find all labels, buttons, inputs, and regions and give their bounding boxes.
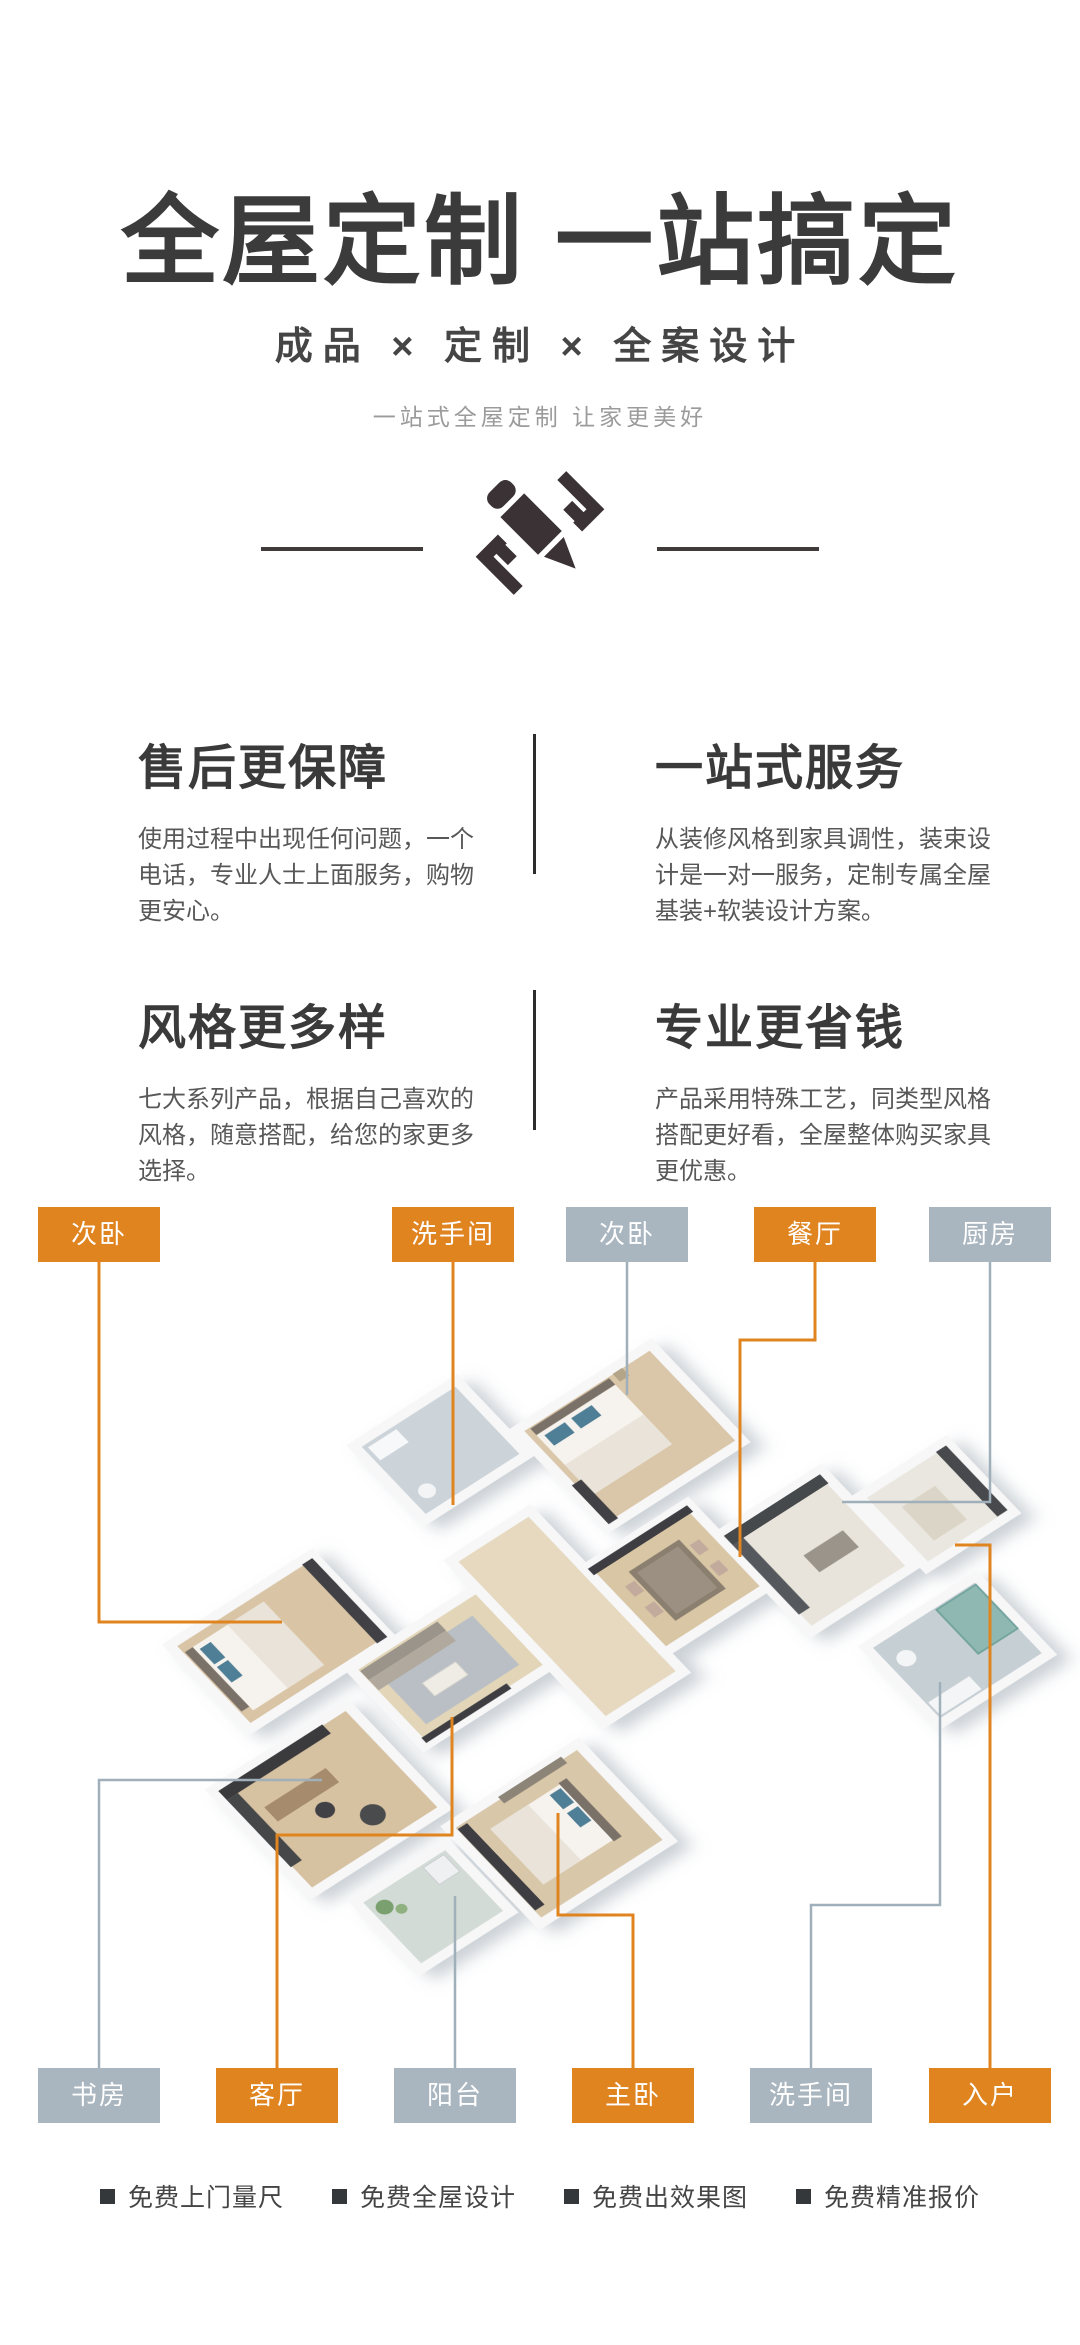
leader-bedroom2-top	[99, 1262, 282, 1622]
feature-divider-top	[533, 734, 536, 874]
feature-title: 专业更省钱	[655, 988, 1000, 1058]
feature-title: 一站式服务	[655, 728, 1000, 798]
service-item: 免费全屋设计	[332, 2178, 516, 2214]
right-divider-line	[657, 547, 819, 551]
room-label-balcony: 阳台	[394, 2068, 516, 2123]
feature-body: 七大系列产品，根据自己喜欢的风格，随意搭配，给您的家更多选择。	[138, 1082, 483, 1190]
service-label: 免费全屋设计	[360, 2178, 516, 2214]
room-label-bathroom-top: 洗手间	[392, 1207, 514, 1262]
square-bullet-icon	[100, 2189, 115, 2204]
feature-styles: 风格更多样 七大系列产品，根据自己喜欢的风格，随意搭配，给您的家更多选择。	[138, 988, 483, 1190]
service-label: 免费上门量尺	[128, 2178, 284, 2214]
feature-body: 从装修风格到家具调性，装束设计是一对一服务，定制专属全屋基装+软装设计方案。	[655, 822, 1000, 930]
feature-aftersales: 售后更保障 使用过程中出现任何问题，一个电话，专业人士上面服务，购物更安心。	[138, 728, 483, 930]
hero-icon-row	[0, 455, 1080, 615]
service-label: 免费精准报价	[824, 2178, 980, 2214]
page-tagline: 一站式全屋定制 让家更美好	[0, 398, 1080, 432]
apartment-render	[62, 1262, 1080, 2039]
room-label-bedroom2: 次卧	[38, 1207, 160, 1262]
service-item: 免费精准报价	[796, 2178, 980, 2214]
square-bullet-icon	[564, 2189, 579, 2204]
room-label-entry: 入户	[929, 2068, 1051, 2123]
service-item: 免费出效果图	[564, 2178, 748, 2214]
service-label: 免费出效果图	[592, 2178, 748, 2214]
service-item: 免费上门量尺	[100, 2178, 284, 2214]
pencil-ruler-icon	[465, 463, 615, 608]
room-label-dining: 餐厅	[754, 1207, 876, 1262]
left-divider-line	[261, 547, 423, 551]
page-subtitle: 成品 × 定制 × 全案设计	[0, 315, 1080, 370]
room-label-study: 书房	[38, 2068, 160, 2123]
square-bullet-icon	[332, 2189, 347, 2204]
room-label-kitchen: 厨房	[929, 1207, 1051, 1262]
feature-body: 使用过程中出现任何问题，一个电话，专业人士上面服务，购物更安心。	[138, 822, 483, 930]
floor-plan-3d	[0, 1262, 1080, 2212]
room-label-master: 主卧	[572, 2068, 694, 2123]
feature-title: 风格更多样	[138, 988, 483, 1058]
room-label-bedroom3: 次卧	[566, 1207, 688, 1262]
page-title: 全屋定制 一站搞定	[0, 190, 1080, 293]
feature-savings: 专业更省钱 产品采用特殊工艺，同类型风格搭配更好看，全屋整体购买家具更优惠。	[655, 988, 1000, 1190]
room-label-living: 客厅	[216, 2068, 338, 2123]
leader-bathroom-bottom	[811, 1682, 940, 2068]
square-bullet-icon	[796, 2189, 811, 2204]
feature-body: 产品采用特殊工艺，同类型风格搭配更好看，全屋整体购买家具更优惠。	[655, 1082, 1000, 1190]
feature-title: 售后更保障	[138, 728, 483, 798]
room-label-bathroom-bot: 洗手间	[750, 2068, 872, 2123]
promo-page: 全屋定制 一站搞定 成品 × 定制 × 全案设计 一站式全屋定制 让家更美好	[0, 0, 1080, 2345]
feature-divider-bottom	[533, 990, 536, 1130]
feature-onestop: 一站式服务 从装修风格到家具调性，装束设计是一对一服务，定制专属全屋基装+软装设…	[655, 728, 1000, 930]
free-services-row: 免费上门量尺 免费全屋设计 免费出效果图 免费精准报价	[0, 2178, 1080, 2214]
